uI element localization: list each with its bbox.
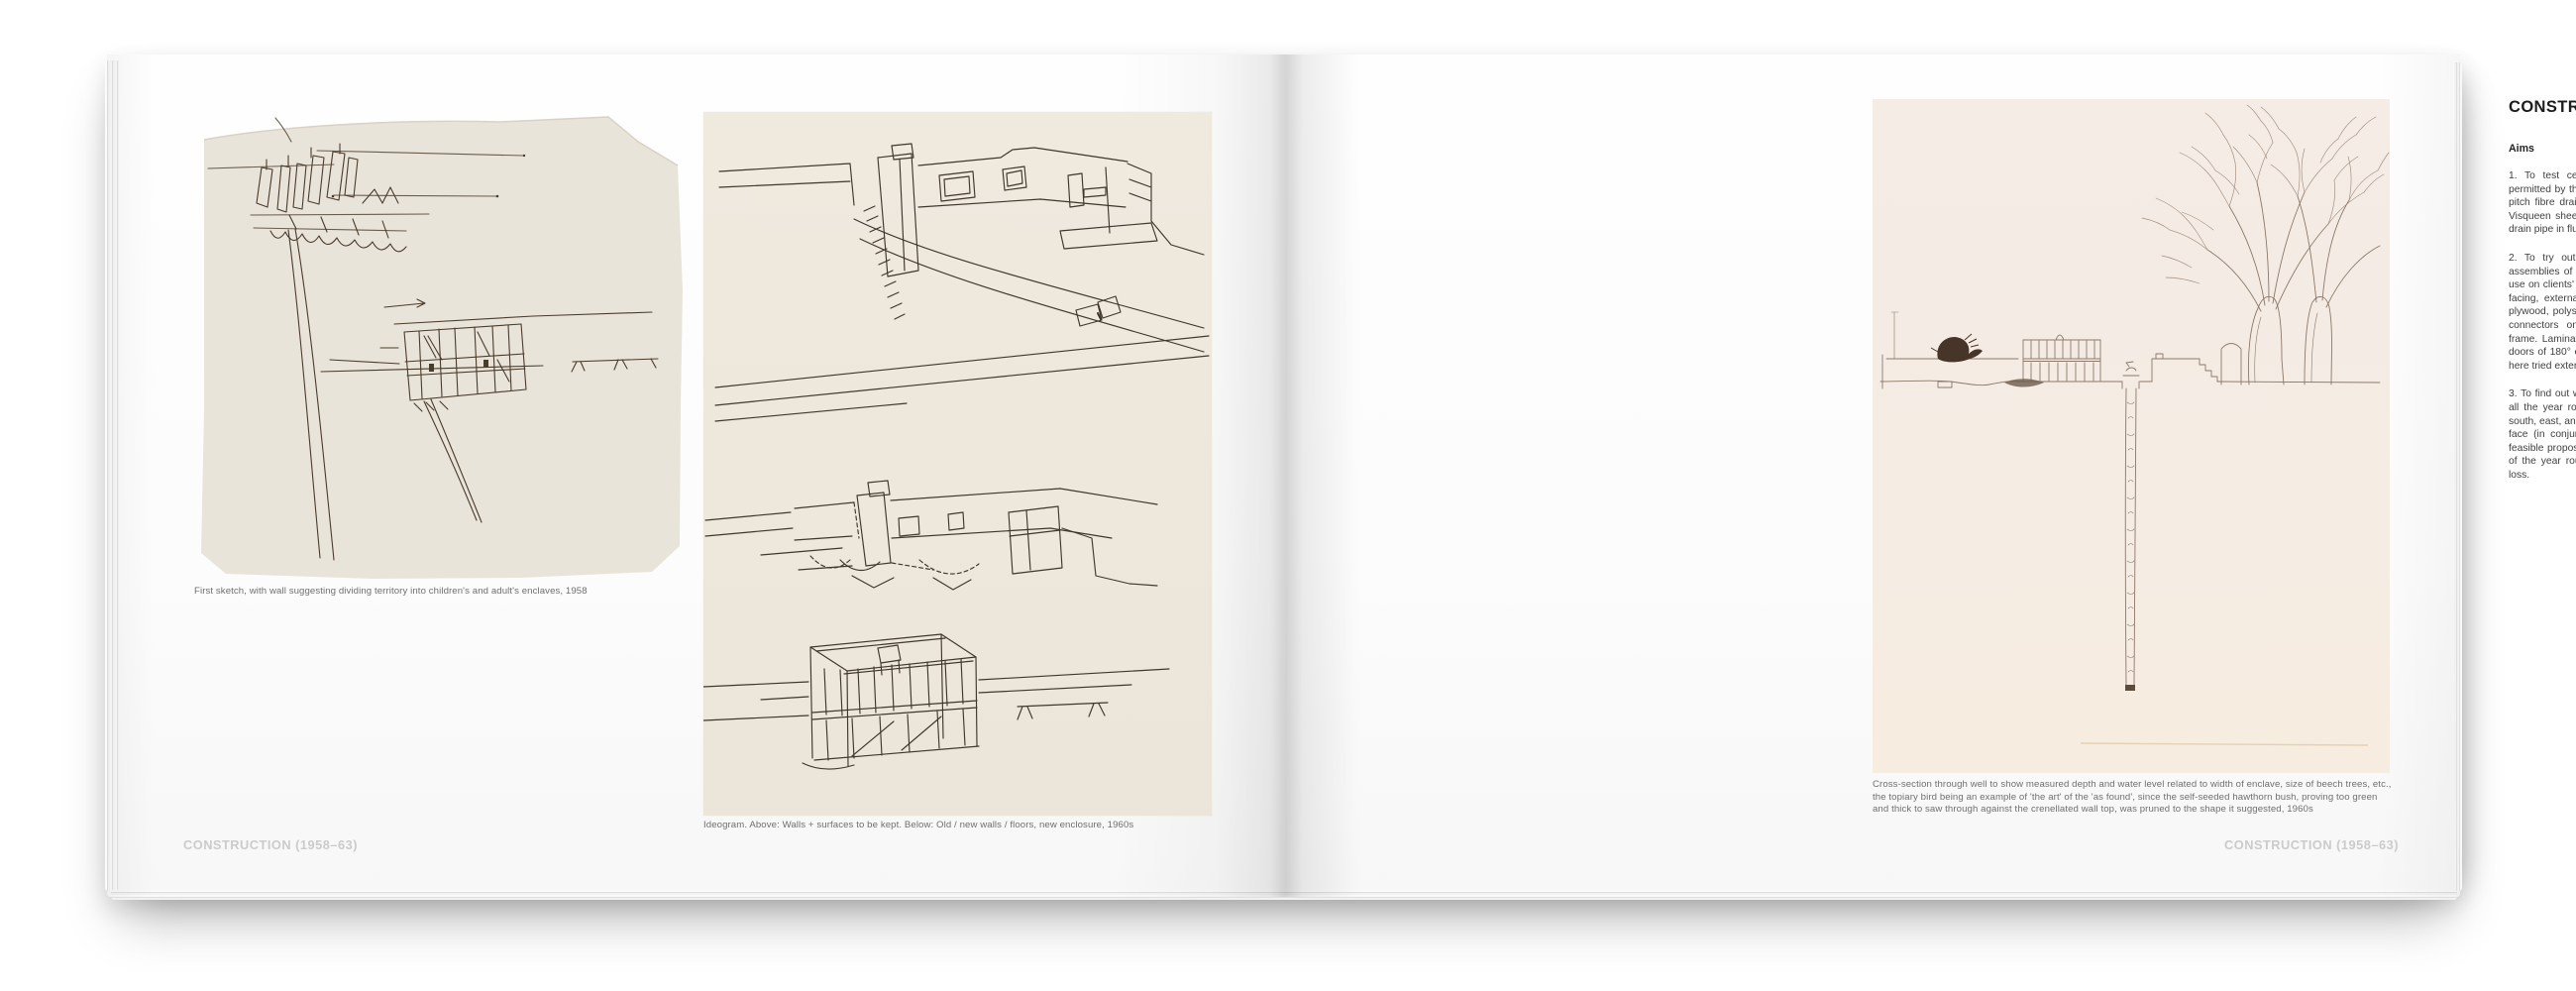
right-page-footer: CONSTRUCTION (1958–63) [2224,837,2399,852]
first-sketch-figure [194,112,692,586]
topiary-bird [1931,334,1983,362]
aims-paragraph-3: 3. To find out what it is like to live i… [2509,387,2576,482]
ideogram-caption: Ideogram. Above: Walls + surfaces to be … [703,820,1199,832]
section-heading: CONSTRUCTION (1958–63) [2509,98,2576,117]
aims-paragraph-2: 2. To try out on ourselves certain appli… [2509,252,2576,373]
right-page: CONSTRUCTION (1958–63) Aims 1. To test c… [1280,55,2460,897]
aims-paragraph-1: 1. To test certain new products which ar… [2509,169,2576,237]
left-page-footer: CONSTRUCTION (1958–63) [183,837,358,852]
ideogram-drawing [703,112,1212,816]
cross-section-caption: Cross-section through well to show measu… [1873,779,2392,817]
cross-section-figure [1873,99,2390,773]
left-page: First sketch, with wall suggesting divid… [107,55,1280,897]
book-spread: First sketch, with wall suggesting divid… [107,55,2460,897]
ideogram-figure [703,112,1212,816]
aims-subheading: Aims [2509,143,2576,155]
cross-section-drawing [1873,99,2390,773]
first-sketch-drawing [194,112,692,586]
aims-text-column: CONSTRUCTION (1958–63) Aims 1. To test c… [2509,98,2576,482]
first-sketch-caption: First sketch, with wall suggesting divid… [194,586,660,599]
